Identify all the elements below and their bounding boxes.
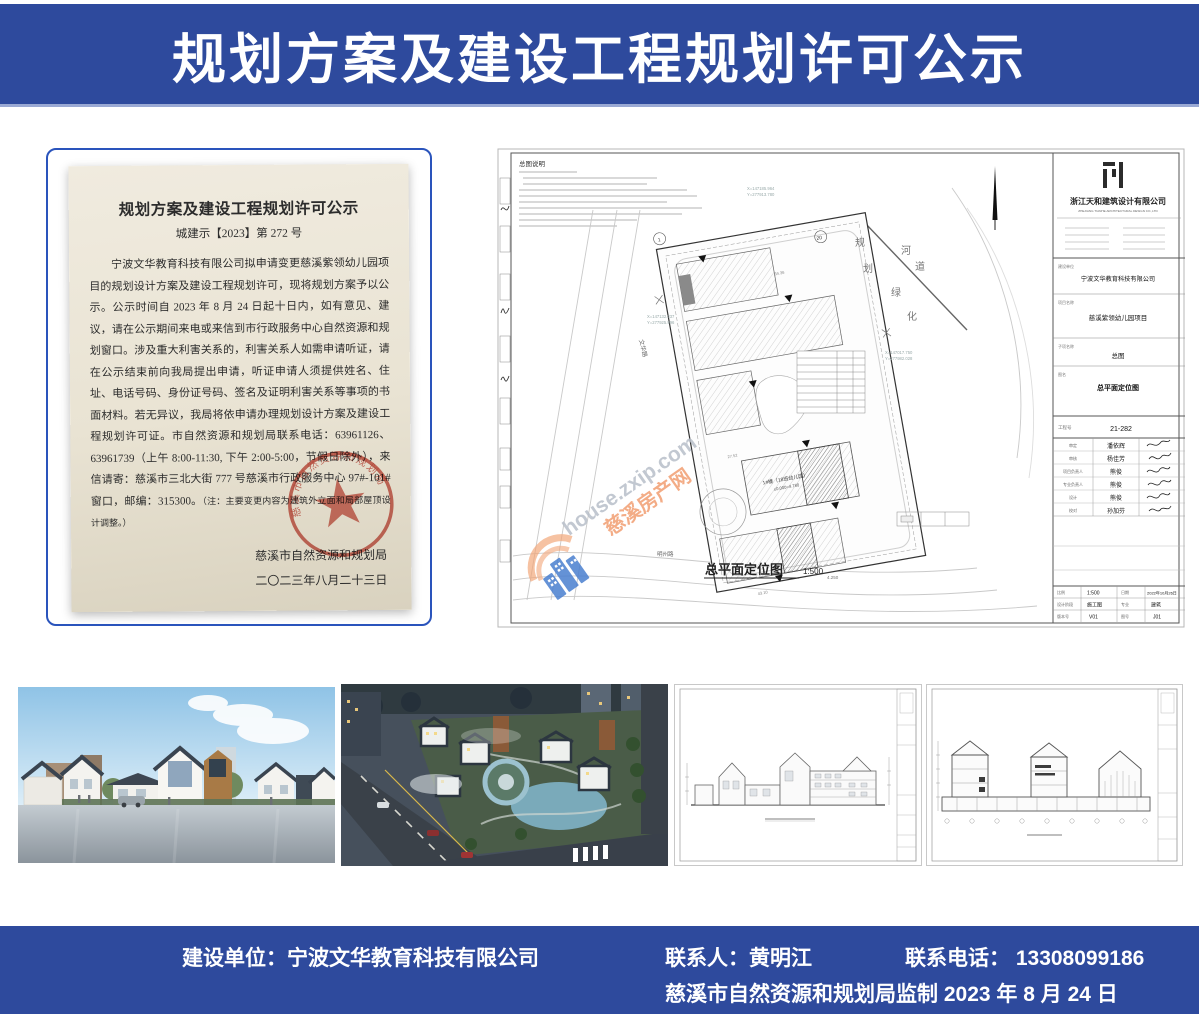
footer-contact: 联系人：黄明江 — [665, 942, 812, 972]
svg-text:Y=277925.996: Y=277925.996 — [647, 320, 675, 325]
svg-text:施工图: 施工图 — [1087, 602, 1102, 609]
svg-text:2022年10月26日: 2022年10月26日 — [1147, 590, 1177, 596]
svg-text:X=147185.964: X=147185.964 — [747, 186, 775, 191]
svg-text:专业: 专业 — [1121, 601, 1129, 607]
project-label: 项目名称 — [1058, 299, 1074, 305]
seal-star-icon — [312, 475, 368, 529]
drawing-name: 总平面定位图 — [1097, 383, 1139, 392]
rendering-street-view — [18, 687, 335, 863]
svg-text:孙加芬: 孙加芬 — [1107, 507, 1125, 515]
svg-text:4.250: 4.250 — [827, 575, 839, 580]
client-label: 建设单位 — [1058, 263, 1074, 269]
notice-document-card: 规划方案及建设工程规划许可公示 城建示【2023】第 272 号 宁波文华教育科… — [46, 148, 432, 626]
svg-text:1:500: 1:500 — [1087, 591, 1100, 597]
footer-phone: 联系电话： 13308099186 — [905, 942, 1144, 972]
footer-builder: 建设单位：宁波文华教育科技有限公司 — [182, 942, 539, 972]
site-plan-drawing: 总图说明 — [497, 148, 1185, 628]
sheet-titleblock-mini — [1158, 693, 1177, 839]
svg-text:河: 河 — [901, 245, 911, 257]
footer-banner: 建设单位：宁波文华教育科技有限公司 联系人：黄明江 联系电话： 13308099… — [0, 926, 1199, 1014]
svg-text:熊俊: 熊俊 — [1110, 494, 1122, 502]
drawing-section-sheet — [926, 684, 1183, 866]
svg-text:比例: 比例 — [1057, 589, 1065, 595]
subproject-name: 总图 — [1112, 351, 1125, 360]
notice-doc-number: 城建示【2023】第 272 号 — [89, 224, 389, 242]
svg-text:化: 化 — [907, 310, 917, 323]
svg-text:1:500: 1:500 — [803, 567, 824, 576]
drawing-elevation-sheet — [674, 684, 922, 866]
svg-text:日期: 日期 — [1121, 589, 1129, 595]
svg-text:版本号: 版本号 — [1057, 613, 1069, 619]
notice-title: 规划方案及建设工程规划许可公示 — [89, 196, 389, 220]
svg-text:V01: V01 — [1089, 615, 1098, 621]
svg-text:项目负责人: 项目负责人 — [1063, 468, 1083, 474]
project-name: 慈溪紫领幼儿园项目 — [1089, 313, 1148, 322]
dimension-lines — [936, 741, 940, 811]
svg-text:校对: 校对 — [1069, 507, 1077, 513]
svg-text:熊俊: 熊俊 — [1110, 468, 1122, 476]
svg-text:划: 划 — [863, 262, 873, 275]
svg-text:绿: 绿 — [891, 286, 901, 299]
sheet-titleblock-mini — [897, 693, 916, 847]
svg-text:X=147132.337: X=147132.337 — [647, 314, 675, 319]
job-number-label: 工程号 — [1058, 424, 1072, 431]
svg-text:Y=277982.028: Y=277982.028 — [885, 356, 913, 361]
svg-text:建筑: 建筑 — [1151, 602, 1161, 609]
drawing-name-label: 图名 — [1058, 371, 1066, 377]
svg-text:规: 规 — [855, 236, 865, 249]
grid-bubbles — [945, 819, 1147, 823]
svg-text:Y=277913.780: Y=277913.780 — [747, 192, 775, 197]
client-name: 宁波文华教育科技有限公司 — [1081, 275, 1155, 283]
svg-text:道: 道 — [915, 260, 925, 273]
svg-text:审定: 审定 — [1069, 442, 1077, 448]
footer-supervisor-date: 慈溪市自然资源和规划局监制 2023 年 8 月 24 日 — [665, 978, 1118, 1008]
site-plan-sheet: 总图说明 — [497, 148, 1185, 628]
svg-text:专业负责人: 专业负责人 — [1063, 481, 1083, 487]
svg-text:审核: 审核 — [1069, 455, 1077, 461]
official-seal: 慈溪市自然资源和规划局 — [277, 441, 404, 568]
public-notice-page: 规划方案及建设工程规划许可公示 规划方案及建设工程规划许可公示 城建示【2023… — [0, 0, 1199, 1014]
rendering-aerial-view — [341, 684, 668, 866]
indicator-table — [797, 351, 865, 413]
svg-text:J01: J01 — [1153, 615, 1161, 621]
subproject-label: 子项名称 — [1058, 343, 1074, 349]
svg-text:设计阶段: 设计阶段 — [1057, 601, 1073, 607]
svg-text:潘依辉: 潘依辉 — [1107, 442, 1125, 450]
svg-text:杨佳芳: 杨佳芳 — [1107, 455, 1125, 463]
notice-paper-photo: 规划方案及建设工程规划许可公示 城建示【2023】第 272 号 宁波文华教育科… — [68, 164, 411, 612]
svg-text:图号: 图号 — [1121, 613, 1129, 619]
svg-text:X=147017.750: X=147017.750 — [885, 350, 913, 355]
section-outline — [942, 741, 1150, 811]
svg-text:总平面定位图: 总平面定位图 — [705, 562, 783, 577]
notice-date: 二〇二三年八月二十三日 — [91, 567, 387, 594]
road-label-bottom: 明州路 — [657, 550, 674, 558]
svg-text:设计: 设计 — [1069, 494, 1077, 500]
page-title: 规划方案及建设工程规划许可公示 — [172, 15, 1027, 94]
svg-text:熊俊: 熊俊 — [1110, 481, 1122, 489]
firm-name-en: ZHEJIANG TIANHE ARCHITECTURAL DESIGN CO.… — [1078, 209, 1158, 213]
header-banner: 规划方案及建设工程规划许可公示 — [0, 4, 1199, 107]
plan-notes-title: 总图说明 — [519, 159, 546, 168]
job-number: 21-282 — [1110, 426, 1132, 433]
firm-name-cn: 浙江天和建筑设计有限公司 — [1070, 196, 1166, 206]
